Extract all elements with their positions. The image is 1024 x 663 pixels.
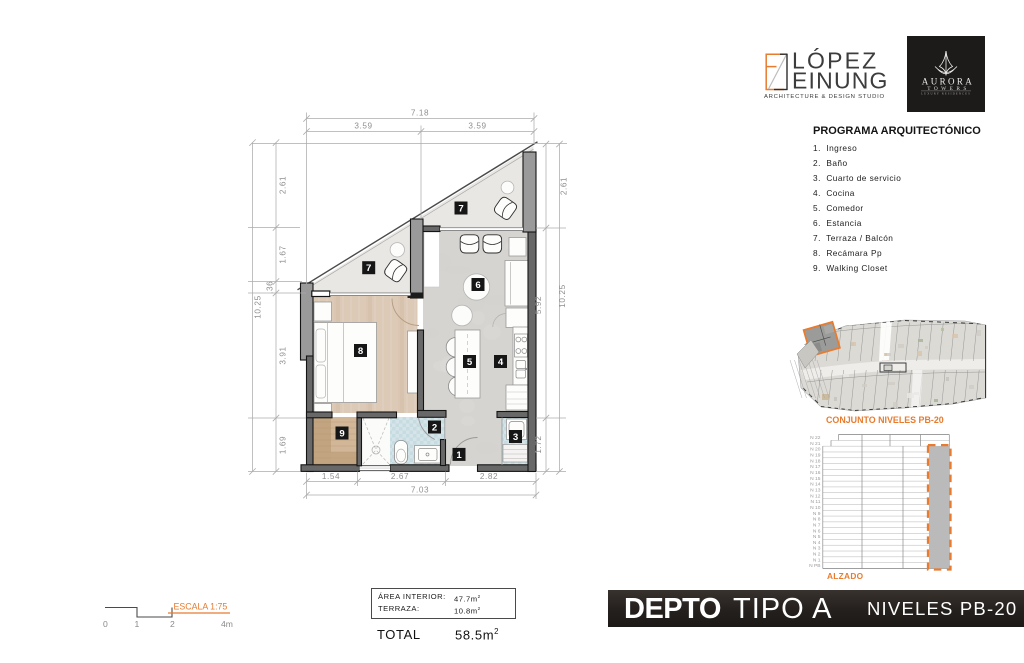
svg-text:2: 2 <box>170 619 175 629</box>
svg-text:N 17: N 17 <box>810 464 821 470</box>
svg-text:N 4: N 4 <box>813 540 821 546</box>
svg-text:N 12: N 12 <box>810 493 821 499</box>
svg-text:7.03: 7.03 <box>411 486 429 495</box>
svg-text:3.59: 3.59 <box>468 122 486 131</box>
svg-text:2.82: 2.82 <box>480 472 498 481</box>
svg-text:2.67: 2.67 <box>391 472 409 481</box>
svg-text:N 18: N 18 <box>810 458 821 464</box>
svg-text:N 21: N 21 <box>810 441 821 447</box>
svg-text:2: 2 <box>432 422 437 433</box>
svg-text:3: 3 <box>513 432 518 443</box>
svg-text:N 10: N 10 <box>810 505 821 511</box>
svg-text:N 3: N 3 <box>813 546 821 552</box>
svg-text:4: 4 <box>498 357 504 368</box>
svg-text:1: 1 <box>456 450 462 461</box>
svg-text:ARCHITECTURE & DESIGN STUDIO: ARCHITECTURE & DESIGN STUDIO <box>764 94 885 100</box>
svg-text:2.61: 2.61 <box>560 177 569 195</box>
svg-text:N 22: N 22 <box>810 435 821 441</box>
svg-text:3.91: 3.91 <box>279 346 288 364</box>
svg-text:1.72: 1.72 <box>534 435 543 453</box>
svg-text:N PB: N PB <box>809 563 820 569</box>
svg-text:N 6: N 6 <box>813 528 821 534</box>
svg-text:N 1: N 1 <box>813 557 821 563</box>
svg-text:N 13: N 13 <box>810 487 821 493</box>
svg-text:1.69: 1.69 <box>279 436 288 454</box>
svg-text:9: 9 <box>339 428 344 439</box>
svg-text:N 11: N 11 <box>811 499 821 505</box>
svg-text:8: 8 <box>358 346 364 357</box>
svg-text:10.25: 10.25 <box>558 284 567 308</box>
svg-text:1.54: 1.54 <box>322 472 340 481</box>
svg-text:6: 6 <box>475 280 480 291</box>
svg-text:7: 7 <box>366 263 371 274</box>
svg-text:N 19: N 19 <box>810 453 821 459</box>
svg-text:1: 1 <box>135 619 140 629</box>
svg-text:N 5: N 5 <box>813 534 821 540</box>
svg-text:N 2: N 2 <box>813 552 821 558</box>
svg-text:N 14: N 14 <box>810 482 821 488</box>
svg-text:0: 0 <box>103 619 108 629</box>
svg-text:3.59: 3.59 <box>354 122 372 131</box>
svg-text:2.61: 2.61 <box>279 176 288 194</box>
svg-text:EINUNG: EINUNG <box>792 68 889 94</box>
svg-text:5.92: 5.92 <box>534 296 543 314</box>
svg-text:N 7: N 7 <box>813 522 821 528</box>
svg-text:N 16: N 16 <box>810 470 821 476</box>
svg-text:7.18: 7.18 <box>411 109 429 118</box>
svg-text:ESCALA 1:75: ESCALA 1:75 <box>174 602 228 612</box>
svg-text:1.67: 1.67 <box>279 245 288 263</box>
svg-text:N 9: N 9 <box>813 511 821 517</box>
svg-text:5: 5 <box>467 357 473 368</box>
svg-text:7: 7 <box>458 203 463 214</box>
svg-text:4m: 4m <box>221 619 233 629</box>
svg-text:10.25: 10.25 <box>254 295 263 319</box>
svg-text:N 15: N 15 <box>810 476 821 482</box>
svg-text:.36: .36 <box>266 281 275 294</box>
svg-text:N 8: N 8 <box>813 517 821 523</box>
svg-text:LUXURY RESIDENCES: LUXURY RESIDENCES <box>921 91 971 95</box>
svg-text:N 20: N 20 <box>810 447 821 453</box>
